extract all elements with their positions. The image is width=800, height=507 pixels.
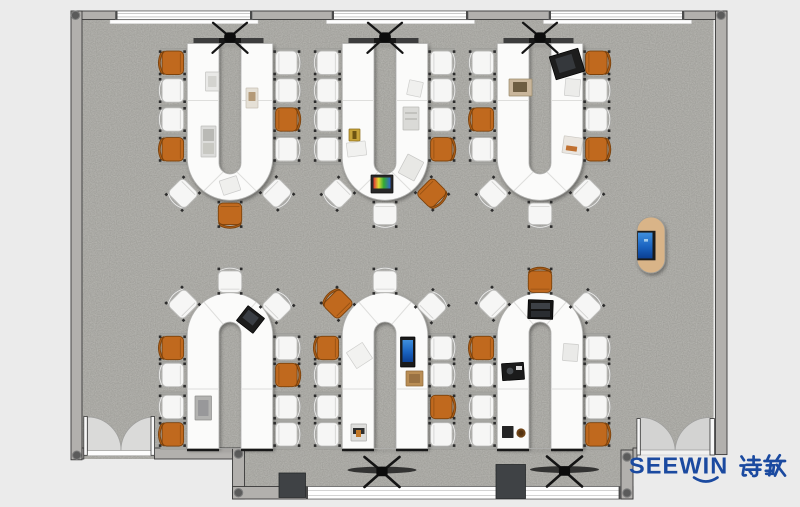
svg-text:SEEWIN: SEEWIN: [629, 453, 728, 479]
